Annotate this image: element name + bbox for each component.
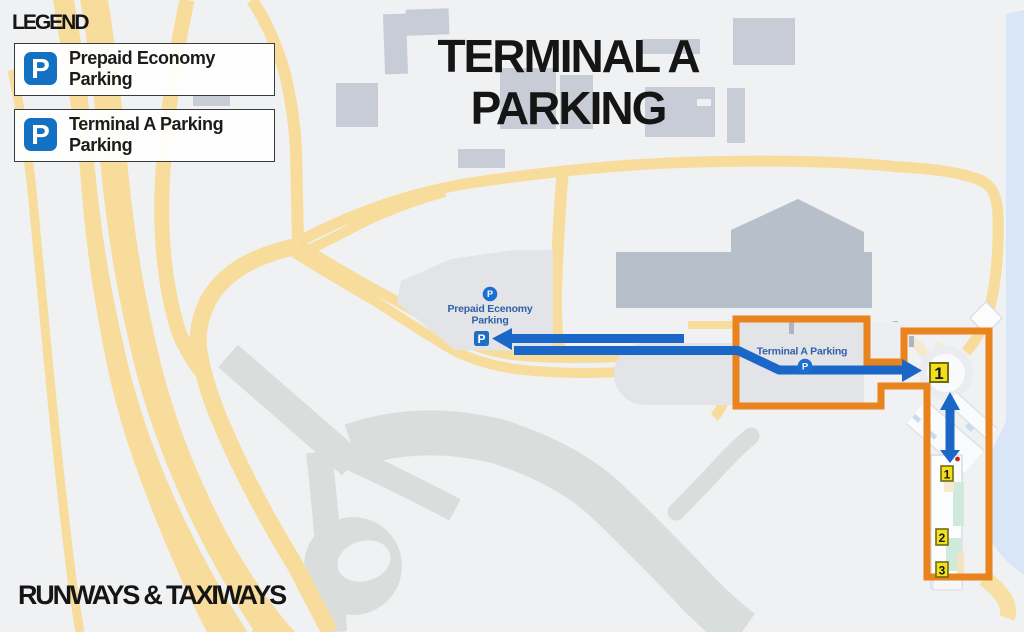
svg-text:1: 1 xyxy=(944,468,951,482)
svg-text:3: 3 xyxy=(939,564,946,578)
svg-text:Terminal A Parking: Terminal A Parking xyxy=(757,346,848,358)
svg-text:2: 2 xyxy=(939,531,946,545)
svg-text:Prepaid Ecenomy: Prepaid Ecenomy xyxy=(447,303,532,315)
svg-text:P: P xyxy=(802,362,809,373)
svg-text:Parking: Parking xyxy=(471,315,508,327)
svg-text:P: P xyxy=(487,289,493,299)
svg-text:P: P xyxy=(477,332,485,346)
svg-text:1: 1 xyxy=(934,364,943,383)
